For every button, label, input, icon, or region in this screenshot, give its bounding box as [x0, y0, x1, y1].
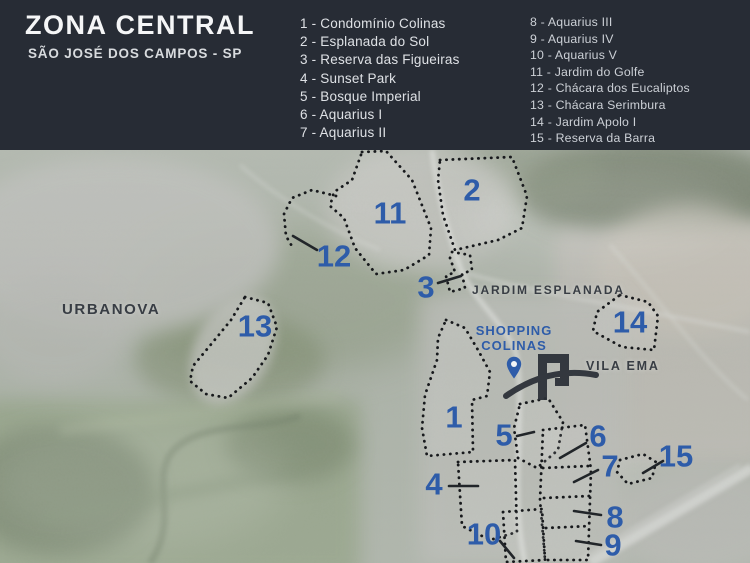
map-marker-9: 9 — [604, 528, 621, 563]
map-label-jardim-esplanada: JARDIM ESPLANADA — [472, 283, 625, 297]
map-marker-14: 14 — [613, 305, 648, 340]
legend-item: 11 - Jardim do Golfe — [530, 64, 690, 81]
legend-column-1: 1 - Condomínio Colinas2 - Esplanada do S… — [300, 15, 460, 142]
legend-item: 8 - Aquarius III — [530, 14, 690, 31]
legend-column-2: 8 - Aquarius III9 - Aquarius IV10 - Aqua… — [530, 14, 690, 147]
legend-item: 1 - Condomínio Colinas — [300, 15, 460, 33]
page-subtitle: SÃO JOSÉ DOS CAMPOS - SP — [25, 46, 255, 61]
page-title: ZONA CENTRAL — [25, 11, 255, 41]
map-marker-4: 4 — [425, 467, 443, 502]
map-label-urbanova: URBANOVA — [62, 301, 160, 318]
legend-item: 5 - Bosque Imperial — [300, 88, 460, 106]
map-marker-1: 1 — [445, 400, 462, 435]
title-block: ZONA CENTRAL SÃO JOSÉ DOS CAMPOS - SP — [25, 11, 255, 61]
header-bar: ZONA CENTRAL SÃO JOSÉ DOS CAMPOS - SP 1 … — [0, 0, 750, 150]
legend-item: 10 - Aquarius V — [530, 47, 690, 64]
legend-item: 15 - Reserva da Barra — [530, 130, 690, 147]
legend-item: 13 - Chácara Serimbura — [530, 97, 690, 114]
legend-item: 7 - Aquarius II — [300, 124, 460, 142]
colinas-arch-logo — [500, 352, 600, 412]
map-marker-2: 2 — [463, 173, 480, 208]
map-marker-11: 11 — [374, 196, 407, 231]
legend-item: 2 - Esplanada do Sol — [300, 33, 460, 51]
shopping-colinas-line1: SHOPPING — [458, 323, 570, 338]
legend-item: 14 - Jardim Apolo I — [530, 114, 690, 131]
map-marker-7: 7 — [601, 449, 618, 484]
map-marker-10: 10 — [467, 517, 501, 552]
legend-item: 4 - Sunset Park — [300, 70, 460, 88]
map-marker-15: 15 — [659, 439, 693, 474]
map-marker-3: 3 — [417, 270, 434, 305]
map-marker-13: 13 — [238, 309, 272, 344]
legend-item: 12 - Chácara dos Eucaliptos — [530, 80, 690, 97]
map-marker-5: 5 — [495, 418, 512, 453]
shopping-colinas-line2: COLINAS — [458, 338, 570, 353]
legend-item: 9 - Aquarius IV — [530, 31, 690, 48]
legend-item: 6 - Aquarius I — [300, 106, 460, 124]
infographic-map-page: 112123131415671548109 URBANOVA JARDIM ES… — [0, 0, 750, 563]
map-marker-12: 12 — [317, 239, 351, 274]
legend-item: 3 - Reserva das Figueiras — [300, 51, 460, 69]
